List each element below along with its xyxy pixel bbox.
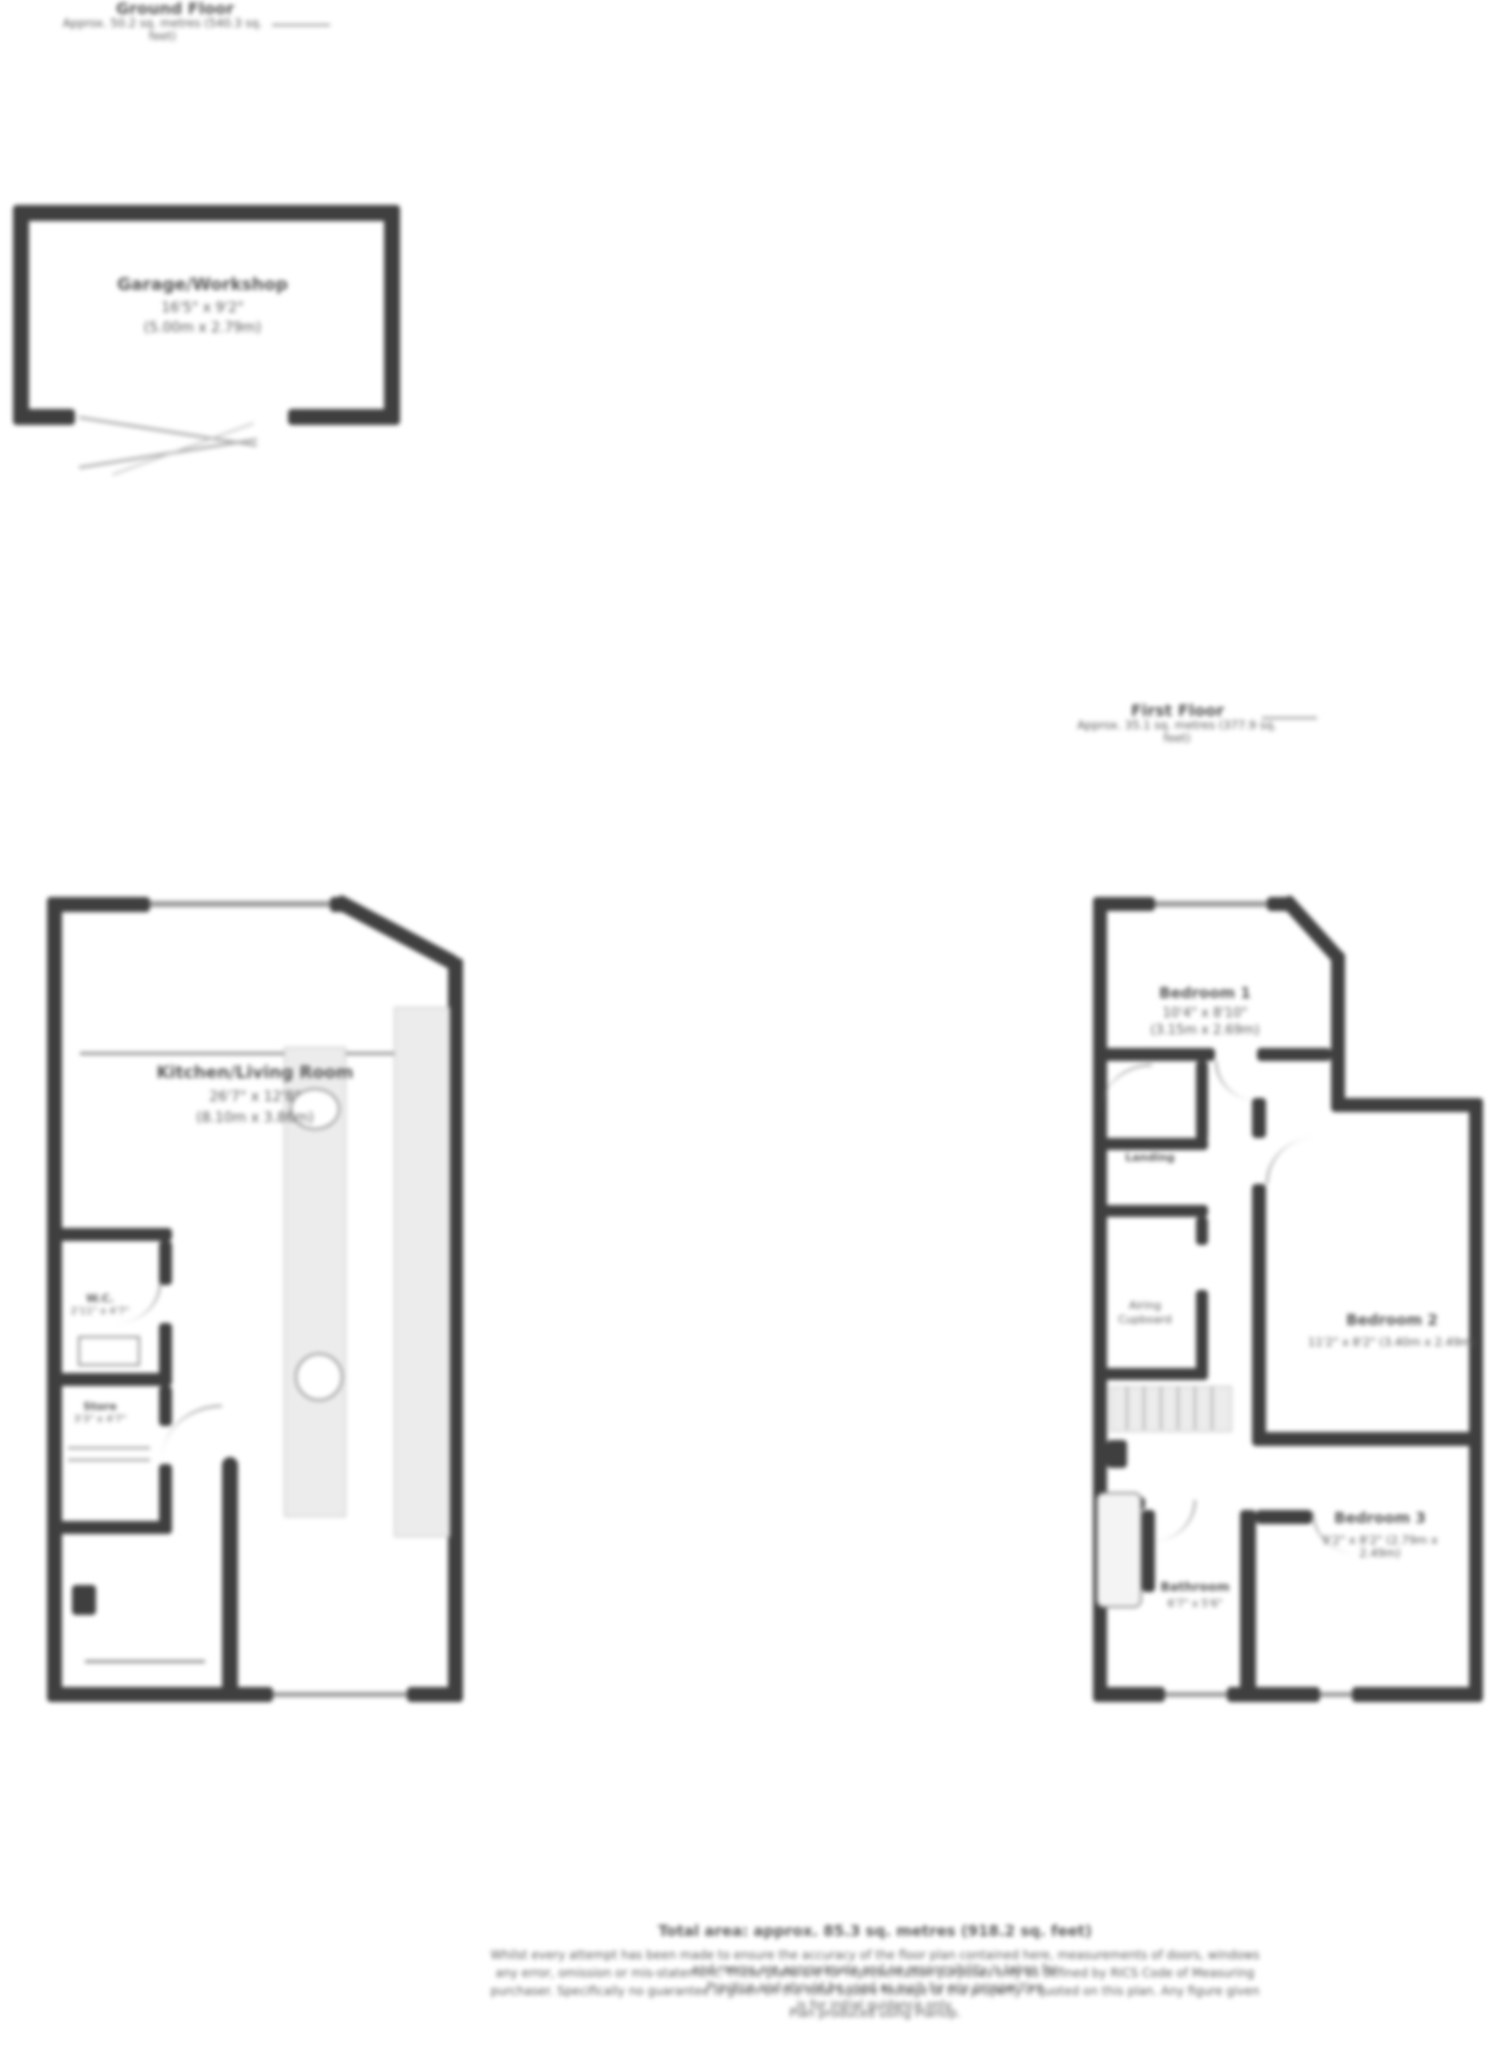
stair-tread: [1211, 1386, 1213, 1430]
gf-wall-bottom: [47, 1687, 273, 1702]
cupboard-wall-top: [1093, 1205, 1208, 1217]
bed2-door-arc: [1266, 1138, 1314, 1184]
bedroom3-dims: 9'2" x 8'2" (2.79m x 2.49m): [1300, 1534, 1460, 1560]
landing-label: Landing: [1100, 1152, 1200, 1165]
bedroom1-label: Bedroom 1: [1105, 985, 1305, 1002]
cupboard-label-1: Airing: [1095, 1300, 1195, 1313]
bedroom1-dims: 10'4" x 8'10": [1105, 1007, 1305, 1022]
ff-window-bottom-2: [1320, 1692, 1352, 1697]
ground-floor-header-area: Approx. 50.2 sq. metres (540.3 sq. feet): [55, 17, 270, 43]
gf-wall-chamfer: [333, 894, 459, 971]
stair-tread: [1126, 1386, 1128, 1430]
store-wall-bottom: [47, 1521, 172, 1534]
living-room-dims-metric: (8.10m x 3.86m): [80, 1110, 430, 1126]
garage-wall-right: [384, 205, 400, 425]
gf-glazing-line: [80, 1052, 430, 1055]
ff-mid-room-wall-right: [1196, 1061, 1208, 1141]
bed1-door-arc: [1215, 1061, 1259, 1101]
first-floor-header-area: Approx. 35.1 sq. metres (377.9 sq. feet): [1072, 719, 1282, 745]
ff-wall-right: [1469, 1098, 1483, 1702]
stair-tread: [1177, 1386, 1179, 1430]
stair-tread: [1194, 1386, 1196, 1430]
plan-drawing: Ground Floor Approx. 50.2 sq. metres (54…: [0, 0, 1497, 2048]
bathroom-dims: 6'7" x 5'6": [1140, 1598, 1250, 1610]
bathroom-label: Bathroom: [1140, 1580, 1250, 1594]
garage-wall-bottom-left: [13, 409, 75, 425]
entrance-door-line: [85, 1660, 205, 1663]
wc-wall-top: [47, 1228, 172, 1241]
store-shelf-line: [68, 1459, 150, 1461]
stairs: [1110, 1386, 1232, 1432]
bed1-wall-bottom: [1093, 1048, 1215, 1061]
living-room-dims: 26'7" x 12'8": [80, 1089, 430, 1105]
header-rule: [272, 24, 330, 26]
wc-dims: 2'11" x 4'7": [50, 1306, 150, 1318]
bed2-wall-bottom: [1252, 1432, 1483, 1446]
cupboard-wall-bottom: [1093, 1368, 1208, 1380]
bedroom2-dims: 11'2" x 8'2" (3.40m x 2.49m): [1292, 1336, 1492, 1349]
bathroom-door-arc: [1150, 1500, 1196, 1542]
garage-wall-bottom-right: [288, 409, 400, 425]
gf-wall-top: [47, 897, 150, 912]
bed2-wall-left-2: [1252, 1184, 1266, 1445]
ff-window-top: [1155, 901, 1267, 907]
ff-wall-bottom: [1093, 1687, 1165, 1702]
wc-wall-right: [159, 1241, 172, 1285]
garage-wall-left: [13, 205, 29, 425]
ff-mid-room-door-arc: [1100, 1064, 1152, 1114]
store-label: Store: [50, 1401, 150, 1414]
bed2-wall-left: [1252, 1098, 1266, 1138]
header-rule: [1262, 717, 1317, 719]
gf-window-bottom: [273, 1692, 407, 1697]
garage-dims-metric: (5.00m x 2.79m): [55, 320, 350, 336]
ff-wall-widen-top: [1331, 1098, 1483, 1112]
total-area-text: Total area: approx. 85.3 sq. metres (918…: [480, 1922, 1270, 1940]
wc-basin-icon: [78, 1336, 140, 1366]
kitchen-counter: [394, 1007, 450, 1537]
hall-wall: [222, 1457, 238, 1702]
ff-wall-right-upper: [1331, 952, 1345, 1110]
ff-wall-bottom-3: [1352, 1687, 1483, 1702]
store-shelf-line: [68, 1447, 150, 1449]
gf-wall-bottom-2: [407, 1687, 463, 1702]
meter-box: [72, 1585, 96, 1615]
cupboard-label-2: Cupboard: [1095, 1314, 1195, 1327]
garage-wall-top: [13, 205, 400, 221]
bedroom3-label: Bedroom 3: [1300, 1510, 1460, 1527]
planup-credit: Plan produced using PlanUp.: [490, 2006, 1260, 2020]
ff-radiator-block: [1107, 1440, 1127, 1468]
store-dims: 3'3" x 4'7": [50, 1414, 150, 1426]
sink-icon: [295, 1353, 343, 1401]
cupboard-wall-right-2: [1196, 1290, 1208, 1380]
stair-tread: [1160, 1386, 1162, 1430]
wc-wall-right-2: [159, 1323, 172, 1378]
wc-label: W.C.: [50, 1293, 150, 1306]
ff-mid-room-wall-bottom: [1093, 1138, 1208, 1150]
cupboard-wall-right: [1196, 1217, 1208, 1245]
gf-window-top: [150, 901, 333, 907]
garage-dims: 16'5" x 9'2": [55, 300, 350, 316]
store-wall-right: [159, 1386, 172, 1426]
bathroom-bed3-wall: [1240, 1510, 1256, 1693]
bedroom2-label: Bedroom 2: [1292, 1312, 1492, 1329]
garage-label: Garage/Workshop: [55, 276, 350, 296]
ff-window-bottom-1: [1165, 1692, 1227, 1697]
living-room-label: Kitchen/Living Room: [80, 1064, 430, 1084]
wc-wall-bottom: [47, 1373, 172, 1386]
garage-door-icon: [112, 422, 254, 475]
bed1-wall-bottom-2: [1257, 1048, 1331, 1061]
bathtub-icon: [1096, 1492, 1142, 1608]
ff-wall-top: [1093, 897, 1155, 911]
gf-wall-right: [448, 958, 463, 1702]
bedroom1-dims-metric: (3.15m x 2.69m): [1105, 1024, 1305, 1039]
stair-tread: [1143, 1386, 1145, 1430]
floorplan-sheet: Ground Floor Approx. 50.2 sq. metres (54…: [0, 0, 1497, 2048]
